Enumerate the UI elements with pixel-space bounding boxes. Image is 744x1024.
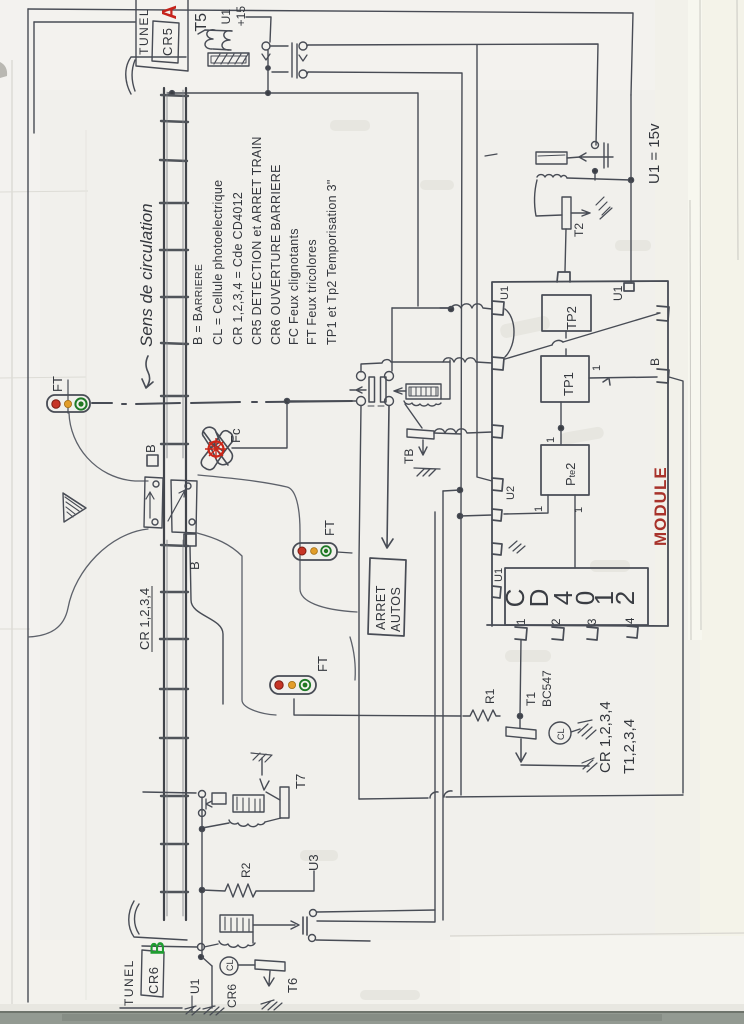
svg-text:TUNEL: TUNEL	[137, 8, 151, 55]
svg-text:CR 1,2,3,4: CR 1,2,3,4	[137, 588, 152, 650]
svg-text:Sens de circulation: Sens de circulation	[137, 203, 156, 347]
svg-text:CR 1,2,3,4: CR 1,2,3,4	[597, 701, 614, 773]
svg-text:U2: U2	[505, 486, 517, 500]
svg-text:B: B	[148, 941, 169, 955]
svg-text:TP1: TP1	[561, 372, 576, 396]
svg-text:MODULE: MODULE	[651, 466, 670, 546]
svg-text:BC547: BC547	[540, 670, 554, 707]
svg-text:CR6: CR6	[146, 966, 161, 994]
svg-text:T6: T6	[285, 978, 300, 993]
svg-text:4: 4	[625, 617, 637, 624]
svg-text:2: 2	[551, 619, 563, 625]
svg-text:U1: U1	[493, 568, 505, 582]
svg-text:TUNEL: TUNEL	[122, 959, 136, 1006]
svg-text:B: B	[648, 358, 662, 366]
svg-text:CL = Cellule photoelectrique: CL = Cellule photoelectrique	[211, 180, 225, 345]
svg-text:B: B	[187, 561, 202, 570]
svg-text:3: 3	[587, 619, 599, 625]
svg-text:CR6: CR6	[225, 984, 239, 1008]
svg-text:U1: U1	[499, 286, 511, 300]
svg-text:FT Feux tricolores: FT Feux tricolores	[305, 239, 319, 345]
svg-text:B: B	[143, 444, 158, 453]
svg-text:Fc: Fc	[228, 428, 243, 443]
svg-text:CL: CL	[556, 728, 566, 740]
svg-text:A: A	[159, 5, 181, 19]
svg-text:B = BARRIERE: B = BARRIERE	[191, 264, 205, 345]
svg-text:CL: CL	[225, 959, 235, 971]
svg-text:CR 1,2,3,4 = Cde CD4012: CR 1,2,3,4 = Cde CD4012	[231, 192, 245, 345]
svg-text:T1: T1	[524, 692, 538, 706]
svg-text:1: 1	[533, 506, 545, 512]
svg-text:CR6 OUVERTURE BARRIERE: CR6 OUVERTURE BARRIERE	[269, 164, 283, 345]
svg-text:TP2: TP2	[564, 306, 579, 330]
svg-text:R2: R2	[239, 862, 253, 878]
svg-text:2: 2	[610, 591, 640, 605]
svg-text:FT: FT	[315, 656, 330, 672]
svg-text:U1: U1	[611, 285, 625, 301]
svg-text:CR5: CR5	[160, 27, 175, 56]
svg-text:TB: TB	[402, 449, 416, 464]
svg-text:T1,2,3,4: T1,2,3,4	[621, 719, 638, 774]
svg-text:+15: +15	[234, 6, 248, 27]
svg-text:ARRET: ARRET	[374, 585, 388, 630]
svg-text:1: 1	[516, 619, 528, 625]
svg-text:T2: T2	[572, 223, 586, 237]
svg-text:FT: FT	[50, 376, 65, 392]
svg-text:AUTOS: AUTOS	[389, 587, 403, 632]
svg-text:FT: FT	[322, 520, 337, 536]
svg-text:U1 = 15v: U1 = 15v	[646, 123, 663, 184]
svg-text:T5: T5	[193, 13, 210, 32]
svg-text:R1: R1	[483, 688, 497, 704]
svg-text:U3: U3	[306, 854, 321, 871]
svg-text:CR5 DETECTION et ARRET TRAIN: CR5 DETECTION et ARRET TRAIN	[250, 136, 264, 345]
svg-text:T7: T7	[293, 774, 308, 789]
svg-text:1: 1	[591, 365, 603, 371]
svg-text:FC Feux clignotants: FC Feux clignotants	[287, 228, 301, 345]
svg-text:1: 1	[545, 437, 557, 443]
svg-text:1: 1	[573, 507, 585, 513]
svg-text:U1: U1	[188, 978, 202, 994]
svg-text:TP1 et Tp2 Temporisation 3": TP1 et Tp2 Temporisation 3"	[325, 179, 339, 345]
svg-text:U1: U1	[219, 9, 233, 25]
